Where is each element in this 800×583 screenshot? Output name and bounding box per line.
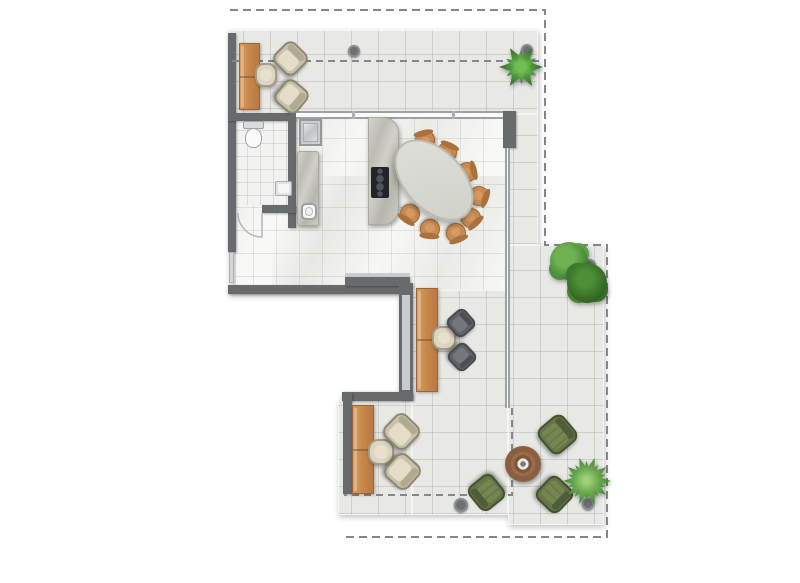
coffee-table <box>505 446 541 482</box>
downlight-1 <box>348 45 360 57</box>
green-chair-2 <box>465 471 509 515</box>
floor-plan <box>0 0 800 583</box>
plant-bush-dark <box>567 263 607 303</box>
furniture-layer <box>0 0 800 583</box>
plant-palm <box>563 457 611 505</box>
washbasin <box>275 181 292 196</box>
plant-agave <box>499 45 543 89</box>
cooktop <box>371 167 389 198</box>
page <box>0 0 800 583</box>
downlight-4 <box>454 498 468 512</box>
armchair-north-2 <box>271 76 312 117</box>
kitchen-appliance <box>299 119 322 146</box>
toilet <box>243 121 264 148</box>
side-table-north <box>255 63 277 87</box>
kitchen-sink <box>301 203 317 220</box>
green-chair-1 <box>534 411 580 457</box>
dining-chair-7 <box>419 218 441 240</box>
